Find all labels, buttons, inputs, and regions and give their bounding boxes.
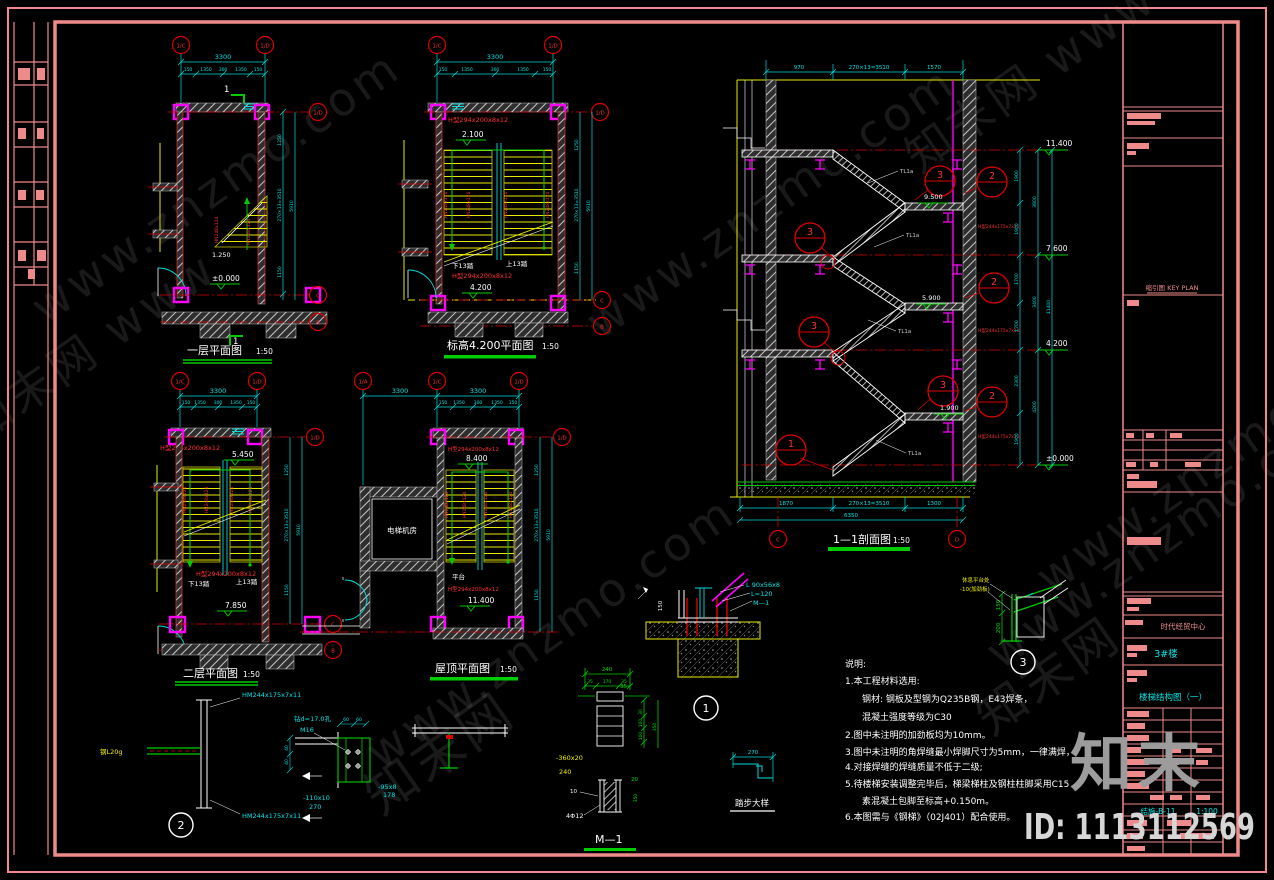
- axis-label: 1/D: [310, 436, 320, 442]
- axis-label: B: [600, 325, 604, 331]
- axis-label: 1/C: [432, 44, 441, 50]
- dim: 1250: [534, 464, 540, 476]
- run-label: 上13踏: [506, 259, 528, 268]
- footing: [515, 323, 543, 337]
- dim: 300: [214, 400, 223, 406]
- dim: 1250: [574, 139, 580, 151]
- dim: 1350: [230, 400, 242, 406]
- elevation: 5.450: [232, 450, 254, 459]
- axis-label: 1/A: [358, 380, 367, 386]
- dim: 1870: [779, 501, 793, 507]
- note-line: 钢材: 钢板及型钢为Q235B钢，E43焊条，: [862, 693, 1032, 705]
- dim: 150: [182, 400, 191, 406]
- wall: [360, 487, 437, 497]
- bolt-label: M16: [300, 726, 314, 734]
- watermark-layer: www.znzmo.com 知末网 www www.znzmo.com www.…: [0, 0, 1274, 827]
- weld-mark: [446, 735, 453, 739]
- plan-title: 标高4.200平面图: [447, 338, 534, 352]
- bubble-number: 2: [989, 391, 995, 402]
- axis-label: D: [955, 538, 959, 544]
- znzmo-logo: 知末: [1070, 733, 1206, 795]
- bubble-number: 3: [807, 227, 813, 238]
- plate-label: -110x10: [303, 794, 330, 802]
- beam-label: H型294x200x8x12: [160, 443, 220, 452]
- beam-label: H型294x200x8x12: [196, 569, 256, 578]
- dim: 150: [543, 67, 552, 73]
- stringer-label: HN248x124: [204, 487, 210, 514]
- wall: [162, 644, 322, 655]
- dim: 1350: [194, 400, 206, 406]
- detail-step: 270 踏步大样: [730, 750, 776, 811]
- dim: 270×13=3510: [849, 501, 890, 507]
- axis-label: B: [331, 649, 335, 655]
- key-plan-label: 缩引图 KEY PLAN: [1146, 283, 1199, 292]
- dim: 1350: [453, 400, 465, 406]
- dim: 10: [570, 789, 577, 795]
- note-label: -10(加劲板): [960, 585, 990, 593]
- stringer-label: HN248x124: [229, 487, 235, 514]
- wall: [428, 103, 568, 112]
- column-label: H型244x175x7x11: [978, 433, 1020, 440]
- note-line: 3.图中未注明的角焊缝最小焊脚尺寸为5mm，一律满焊，: [845, 746, 1075, 758]
- dim: 60: [343, 717, 349, 723]
- stringer-label: HN248x124: [444, 492, 450, 519]
- note-line: 2.图中未注明的加劲板均为10mm。: [845, 729, 991, 741]
- dim: 5910: [296, 524, 302, 536]
- elevation: 9.500: [924, 193, 943, 201]
- axis-label: C: [331, 623, 335, 629]
- footing: [266, 324, 296, 338]
- dim: 1900: [1014, 223, 1020, 235]
- dim: 270×13=3510: [284, 508, 290, 541]
- elevation: 4.200: [470, 283, 492, 292]
- dim: 270: [748, 750, 759, 756]
- angle-label: L 90x56x8: [746, 581, 780, 589]
- footing: [455, 323, 483, 337]
- beam-size-label: HM244x175x7x11: [242, 691, 301, 699]
- dim: 350: [633, 794, 639, 803]
- axis-label: 1/C: [175, 380, 184, 386]
- run-label: 上13踏: [236, 577, 258, 586]
- dim: 35: [621, 679, 627, 685]
- elevation: ±0.000: [212, 274, 240, 283]
- beam-label: H型294x200x8x12: [448, 585, 499, 593]
- footing: [200, 324, 230, 338]
- rebar-label: 4Φ12: [566, 812, 584, 820]
- dim: 5910: [546, 529, 552, 541]
- dim: 1350: [461, 67, 473, 73]
- axis-label: C: [776, 538, 780, 544]
- axis-label: 1/D: [252, 380, 262, 386]
- note-line: 1.本工程材料选用:: [845, 675, 920, 687]
- stair-flight: [230, 467, 262, 562]
- dim: 150: [509, 400, 518, 406]
- axis-label: 1/D: [514, 380, 524, 386]
- dim: 30: [638, 709, 644, 715]
- stair-flight: [183, 467, 220, 562]
- bubble-number: 1: [788, 439, 794, 450]
- drill-label: 钻d=17.0孔: [294, 714, 332, 723]
- revision-redacted-blocks: [18, 68, 46, 279]
- dim: 270×13=3510: [277, 188, 283, 221]
- beam-label: H型294x200x8x12: [452, 271, 512, 280]
- concrete: [678, 639, 738, 677]
- elevation: 1.250: [212, 251, 231, 259]
- dim: 6350: [844, 513, 858, 519]
- dim: 178: [383, 791, 395, 799]
- dim: 11400: [1046, 300, 1052, 314]
- axis-label: 1/C: [432, 380, 441, 386]
- axis-label: C: [316, 294, 320, 300]
- steel-label: 钢L20g: [100, 748, 123, 756]
- stringer-label: HN248x124: [503, 192, 509, 219]
- dim: 3300: [210, 387, 227, 395]
- note-line: 素混凝土包脚至标高+0.150m。: [862, 795, 994, 807]
- wall: [176, 437, 182, 637]
- plan-title: 屋顶平面图: [435, 662, 490, 675]
- dim: 1300: [927, 501, 941, 507]
- detail-title: 踏步大样: [735, 798, 770, 809]
- dim: 40: [284, 745, 290, 751]
- detail-number: 1: [703, 702, 710, 715]
- detail-number: 2: [178, 819, 185, 832]
- dim: 5910: [586, 200, 592, 212]
- dim: 20: [631, 777, 638, 783]
- building-name: 3#楼: [1154, 648, 1178, 660]
- plan-scale: 1:50: [500, 665, 517, 674]
- elevation: 1.900: [940, 404, 959, 412]
- wall: [433, 628, 523, 639]
- note-line: 5.待楼梯安装调整完毕后，梯梁梯柱及钢柱柱脚采用C15: [845, 778, 1069, 790]
- wall: [437, 438, 444, 633]
- flight-label: TL1a: [905, 233, 919, 239]
- wall: [360, 487, 370, 571]
- dim: 150: [254, 67, 263, 73]
- project-name: 时代经贸中心: [1161, 621, 1206, 631]
- dim: 350: [652, 723, 658, 732]
- dim: 1350: [235, 67, 247, 73]
- elevation: 11.400: [1046, 139, 1072, 148]
- plan-scale: 1:50: [542, 342, 559, 351]
- dim: 5910: [289, 200, 295, 212]
- watermark-id-label: ID: 1113112569: [1024, 810, 1255, 846]
- wall: [436, 112, 442, 304]
- detail-title: M—1: [595, 833, 623, 846]
- section-scale: 1:50: [893, 536, 910, 545]
- axis-label: 1/D: [548, 44, 558, 50]
- dim: 4200: [1032, 401, 1038, 413]
- beam-label: H型294x200x8x12: [448, 445, 499, 453]
- note-label: 休息平台处: [962, 576, 990, 584]
- axis-label: 1/D: [260, 44, 270, 50]
- plan-scale: 1:50: [256, 347, 273, 356]
- elevation: 4.200: [1046, 339, 1068, 348]
- column: [305, 617, 320, 632]
- elevation: ±0.000: [1046, 454, 1074, 463]
- flight-label: TL1a: [899, 169, 913, 175]
- stringer-label: HN248x124: [248, 487, 254, 514]
- dim: 3300: [487, 53, 504, 61]
- bubble-number: 3: [937, 170, 943, 181]
- bolts: [345, 749, 361, 769]
- stringer-label: HN248x124: [462, 492, 468, 519]
- dim: 970: [794, 65, 805, 71]
- dim: 170: [603, 679, 612, 685]
- wall: [558, 112, 565, 310]
- dim: 3300: [470, 387, 487, 395]
- stringer-label: HN248x124: [182, 487, 188, 514]
- plate-label: -360x20: [556, 754, 583, 762]
- dim: 1350: [200, 67, 212, 73]
- cad-sheet: www.znzmo.com 知末网 www www.znzmo.com www.…: [0, 0, 1274, 880]
- section-flag: 1: [224, 85, 229, 95]
- dim: 1150: [284, 584, 290, 596]
- wall: [428, 312, 568, 323]
- wall: [177, 112, 183, 298]
- axis-label: C: [600, 299, 604, 305]
- plate: [597, 692, 623, 701]
- concrete: [646, 622, 760, 639]
- floor-slab: [742, 255, 833, 262]
- dim: 150: [439, 67, 448, 73]
- dim: 270×13=3510: [534, 508, 540, 541]
- wall: [360, 561, 437, 571]
- elevation: 11.400: [468, 596, 494, 605]
- drawing-title: 楼梯结构图（一）: [1139, 692, 1207, 703]
- wall: [766, 80, 776, 480]
- plate-label: 240: [559, 768, 571, 776]
- dim: 300: [491, 67, 500, 73]
- angle-length: L=120: [751, 590, 772, 598]
- flight-label: TL1a: [897, 329, 911, 335]
- dim: 1900: [1014, 170, 1020, 182]
- plate-label: -95x8: [378, 783, 397, 791]
- flight-label: TL1a: [907, 451, 921, 457]
- wall: [360, 571, 370, 628]
- dim: 1350: [517, 67, 529, 73]
- stringer-label: HN248x124: [483, 492, 489, 519]
- dim: 2300: [1014, 375, 1020, 387]
- elevation: 2.100: [462, 130, 484, 139]
- dim: 240: [602, 667, 613, 673]
- dim: 270×13=3510: [574, 188, 580, 221]
- door-swing: [408, 270, 436, 298]
- dim: 1570: [927, 65, 941, 71]
- dim: 100: [638, 719, 644, 728]
- axis-label: 1/D: [595, 111, 605, 117]
- dim: 200: [996, 622, 1002, 633]
- dim: 1700: [1014, 320, 1020, 332]
- elevation: 7.850: [225, 601, 247, 610]
- revision-strip: [14, 22, 48, 855]
- beam-size-label: HM244x175x7x11: [242, 812, 301, 820]
- bubble-number: 3: [940, 380, 946, 391]
- dim: 3400: [1032, 296, 1038, 308]
- plan-title: 一层平面图: [187, 344, 242, 357]
- elevation: 8.400: [466, 454, 488, 463]
- detail-number: 3: [1020, 656, 1027, 669]
- dim: 100: [638, 732, 644, 741]
- dim: 1150: [534, 589, 540, 601]
- wall: [963, 80, 976, 482]
- dim: 150: [658, 600, 664, 611]
- dim: 150: [184, 67, 193, 73]
- stair-flight: [504, 150, 552, 255]
- elevation: 5.900: [922, 294, 941, 302]
- run-label: 下13踏: [452, 261, 474, 270]
- dim: 270×13=3510: [849, 65, 890, 71]
- stringer-label: HN248x124: [246, 219, 252, 246]
- notes-title: 说明:: [845, 658, 866, 670]
- dim: 1350: [491, 400, 503, 406]
- axis-label: 1/D: [557, 436, 567, 442]
- floor-slab: [742, 150, 833, 157]
- dim: 35: [587, 679, 593, 685]
- footing: [266, 655, 294, 669]
- stringer-label: HN248x124: [508, 492, 514, 519]
- dim: 300: [474, 400, 483, 406]
- weld-hatch: [604, 782, 616, 810]
- dim: 40: [284, 759, 290, 765]
- plan-second-floor: 1/C 1/D 3300 150 1350 300 1350 150 1/D H…: [150, 373, 342, 686]
- bubble-number: 3: [811, 321, 817, 332]
- stair-flight: [446, 470, 476, 562]
- section-title: 1—1剖面图: [833, 532, 891, 546]
- wall: [262, 437, 269, 642]
- wall: [515, 438, 522, 633]
- dim: 3300: [392, 387, 409, 395]
- dim: 300: [219, 67, 228, 73]
- dim: 1900: [1014, 433, 1020, 445]
- note-line: 混凝土强度等级为C30: [862, 711, 952, 723]
- room-label: 电梯机房: [387, 525, 417, 535]
- stringer-label: HN248x124: [466, 192, 472, 219]
- axis-label: 1/D: [313, 111, 323, 117]
- dim: 1700: [1014, 273, 1020, 285]
- dim: 1250: [284, 464, 290, 476]
- bubble-number: 2: [991, 277, 997, 288]
- note-line: 4.对接焊缝的焊缝质量不低于二级;: [845, 761, 983, 773]
- dim: 1150: [574, 262, 580, 274]
- column-label: H型244x175x7x11: [978, 327, 1020, 334]
- dim: 60: [356, 717, 362, 723]
- column-label: H型244x175x7x11: [978, 223, 1020, 230]
- bubble-number: 2: [989, 171, 995, 182]
- dim: 270: [309, 803, 321, 811]
- dim: 1150: [277, 266, 283, 278]
- landing-slab: [905, 203, 963, 210]
- dim: 1250: [277, 134, 283, 146]
- stringer-label: HN248x124: [214, 217, 220, 244]
- axis-label: 1/C: [176, 44, 185, 50]
- dim: 150: [439, 400, 448, 406]
- plan-title: 二层平面图: [183, 667, 238, 680]
- dim: 150: [247, 400, 256, 406]
- platform-label: 平台: [452, 572, 465, 581]
- m1-ref: M—1: [753, 599, 769, 607]
- plan-scale: 1:50: [243, 670, 260, 679]
- stringer-label: HN248x124: [443, 192, 449, 219]
- detail-m1: 240 35 170 35 30 100 100 350 20 350 -360…: [556, 667, 658, 851]
- note-line: 6.本图需与《钢梯》（02J401）配合使用。: [845, 811, 1015, 823]
- stair-flights: [833, 150, 905, 476]
- dim: 3800: [1032, 196, 1038, 208]
- elevation: 7.600: [1046, 244, 1068, 253]
- beam-label: H型294x200x8x12: [448, 115, 508, 124]
- dim: 3300: [215, 53, 232, 61]
- axis-label: B: [316, 321, 320, 327]
- floor-slab: [742, 350, 833, 357]
- stringer-label: HN248x124: [545, 192, 551, 219]
- run-label: 下13踏: [188, 579, 210, 588]
